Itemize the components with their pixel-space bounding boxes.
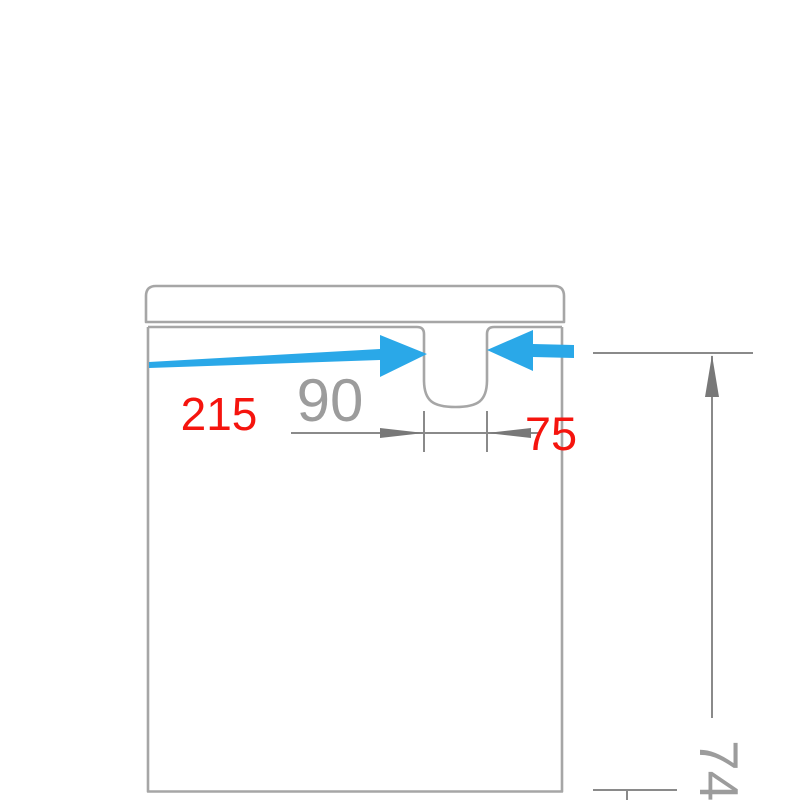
- dim-label-height: 74: [688, 740, 750, 800]
- dim-label-notch-width: 90: [297, 367, 364, 434]
- dim-label-left-offset: 215: [181, 388, 258, 440]
- worktop-strip: [146, 286, 564, 322]
- height-dimension: [593, 353, 753, 718]
- technical-drawing: 215 90 75 74: [0, 0, 800, 800]
- drawing-canvas: 215 90 75 74: [0, 0, 800, 800]
- dim-label-right-offset: 75: [525, 407, 577, 460]
- blue-arrow-right-icon: [149, 335, 427, 377]
- arrowhead-up-icon: [705, 355, 719, 397]
- arrowhead-right-icon: [380, 428, 424, 438]
- floor-dimension: [593, 790, 677, 800]
